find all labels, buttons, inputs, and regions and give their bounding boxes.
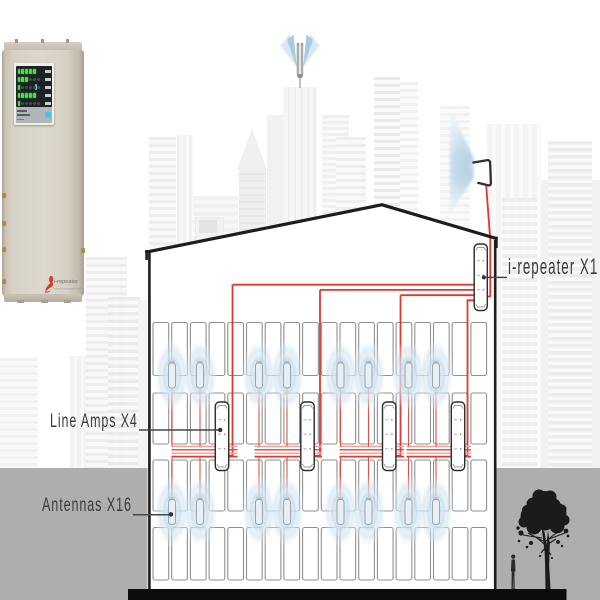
svg-text:internal coverage solutions: internal coverage solutions <box>54 287 84 291</box>
svg-text:i-repeater: i-repeater <box>54 279 78 285</box>
